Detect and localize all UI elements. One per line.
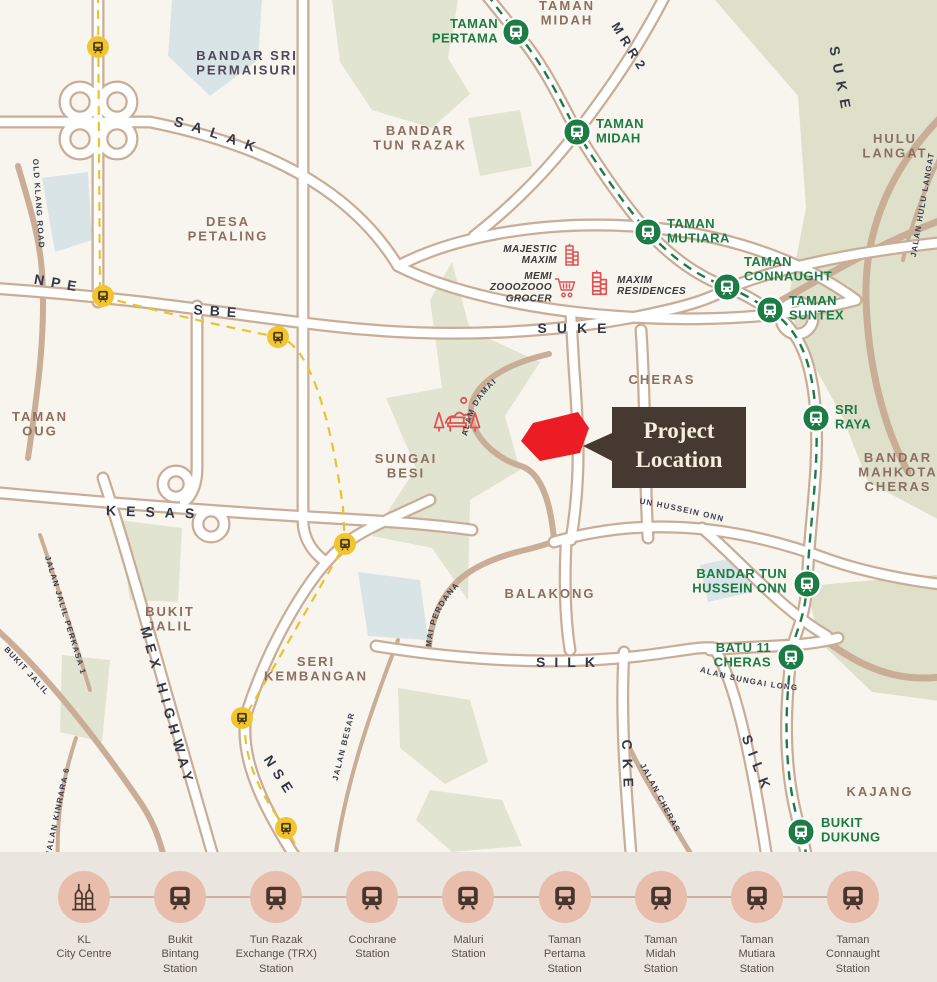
legend-station-name: Maluri Station xyxy=(451,933,485,962)
map-label: KAJANG xyxy=(847,784,914,799)
legend-station: Tun Razak Exchange (TRX) Station xyxy=(228,852,324,982)
legend-station-name: Taman Mutiara Station xyxy=(738,933,775,976)
legend-station: Cochrane Station xyxy=(324,852,420,982)
callout-line2: Location xyxy=(636,447,723,472)
mrt-legend-strip: KL City CentreBukit Bintang StationTun R… xyxy=(0,852,937,982)
map-label: CKE xyxy=(619,739,637,796)
map-label: TAMANMIDAH xyxy=(539,0,595,28)
map-label: SILK xyxy=(536,654,604,670)
train-icon xyxy=(827,871,879,923)
legend-station-name: KL City Centre xyxy=(57,933,112,962)
map-label: SUKE xyxy=(538,320,617,336)
legend-station: Taman Midah Station xyxy=(613,852,709,982)
train-icon xyxy=(346,871,398,923)
map-label: TAMANMIDAH xyxy=(596,116,644,146)
map-label: BANDAR TUNHUSSEIN ONN xyxy=(692,566,787,596)
legend-station: KL City Centre xyxy=(36,852,132,982)
train-icon xyxy=(539,871,591,923)
callout-line1: Project xyxy=(643,418,714,443)
map-label: BANDAR SRIPERMAISURI xyxy=(196,48,298,78)
map-label: BALAKONG xyxy=(504,586,595,601)
train-icon xyxy=(731,871,783,923)
train-icon xyxy=(154,871,206,923)
train-icon xyxy=(250,871,302,923)
klcc-towers-icon xyxy=(58,871,110,923)
legend-station-name: Taman Pertama Station xyxy=(544,933,586,976)
legend-station: Taman Mutiara Station xyxy=(709,852,805,982)
project-location-map: TAMANMIDAHBANDAR SRIPERMAISURIBANDARTUN … xyxy=(0,0,937,982)
map-canvas: TAMANMIDAHBANDAR SRIPERMAISURIBANDARTUN … xyxy=(0,0,937,852)
map-label: TAMANSUNTEX xyxy=(789,293,844,323)
map-label: CHERAS xyxy=(629,372,696,387)
map-label: BANDARMAHKOTACHERAS xyxy=(858,450,937,494)
map-label: BATU 11CHERAS xyxy=(714,640,771,670)
map-label: BANDARTUN RAZAK xyxy=(373,123,467,153)
legend-station-name: Tun Razak Exchange (TRX) Station xyxy=(236,933,317,976)
legend-station: Taman Pertama Station xyxy=(517,852,613,982)
train-icon xyxy=(635,871,687,923)
legend-station: Maluri Station xyxy=(420,852,516,982)
legend-stations: KL City CentreBukit Bintang StationTun R… xyxy=(0,852,937,982)
map-label: KESAS xyxy=(106,502,205,521)
legend-station-name: Bukit Bintang Station xyxy=(162,933,199,976)
legend-station-name: Taman Connaught Station xyxy=(826,933,880,976)
legend-station: Taman Connaught Station xyxy=(805,852,901,982)
train-icon xyxy=(442,871,494,923)
legend-station-name: Taman Midah Station xyxy=(644,933,678,976)
legend-station-name: Cochrane Station xyxy=(349,933,397,962)
legend-station: Bukit Bintang Station xyxy=(132,852,228,982)
